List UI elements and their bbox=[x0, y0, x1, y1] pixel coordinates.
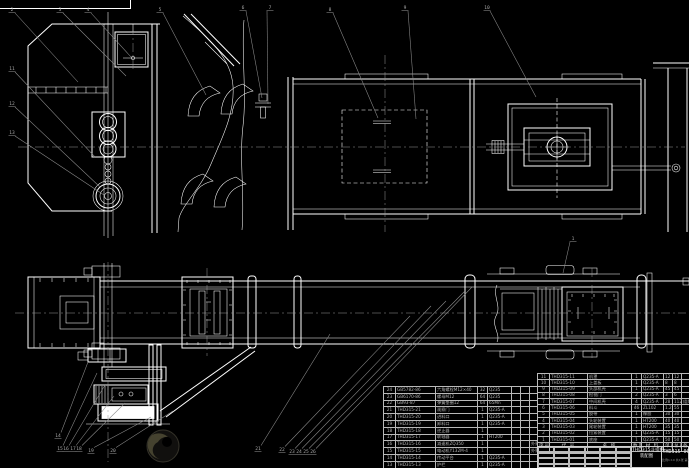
bom-row: 23GB6170-86螺母M1264Q235 bbox=[384, 393, 538, 400]
bom-cell: 16 bbox=[384, 441, 396, 448]
bom-cell bbox=[512, 400, 521, 407]
title-block: THD315斗提机 装配图 THD315-00 比例1:10 共1张 第1张 bbox=[537, 446, 689, 468]
balloon-20: 20 bbox=[110, 448, 116, 454]
bom-cell: THD315-21 bbox=[396, 407, 436, 414]
border-fragment bbox=[0, 0, 131, 9]
bom-cell: 1 bbox=[478, 434, 488, 441]
elevation-view bbox=[18, 12, 689, 238]
balloon-23: 23 bbox=[289, 449, 295, 455]
bom-cell bbox=[512, 461, 521, 468]
right-end-wall bbox=[653, 63, 689, 232]
drawing-title-cell: THD315斗提机 装配图 bbox=[631, 447, 662, 468]
casing bbox=[288, 74, 645, 230]
head-pulley-assembly bbox=[92, 112, 125, 211]
bom-cell: 观察门 bbox=[436, 407, 478, 414]
balloon-26: 26 bbox=[310, 449, 316, 455]
balloon-17: 17 bbox=[70, 446, 76, 452]
cad-drawing-canvas: 2345678910111213114151617181920212223242… bbox=[0, 0, 689, 468]
bom-cell bbox=[521, 461, 530, 468]
balloon-19: 19 bbox=[88, 448, 94, 454]
balloon-15: 15 bbox=[57, 446, 63, 452]
break-line bbox=[495, 285, 498, 342]
bom-cell: 20 bbox=[384, 414, 396, 421]
bom-cell: 1 bbox=[478, 441, 488, 448]
bom-cell: 64 bbox=[478, 400, 488, 407]
balloon-18: 18 bbox=[76, 446, 82, 452]
bom-cell: 17 bbox=[384, 434, 396, 441]
bom-cell: Q235 bbox=[488, 387, 512, 394]
bom-cell bbox=[488, 441, 512, 448]
balloon-14: 14 bbox=[55, 433, 61, 439]
balloon-2: 2 bbox=[11, 7, 14, 13]
bom-row: 19THD315-19卸料口1Q235-A bbox=[384, 420, 538, 427]
plan-boot-section bbox=[487, 266, 689, 360]
balloon-5: 5 bbox=[159, 7, 162, 13]
bom-cell: 14 bbox=[384, 454, 396, 461]
bom-cell: THD315-17 bbox=[396, 434, 436, 441]
bom-cell: 65Mn bbox=[488, 400, 512, 407]
bom-cell: 22 bbox=[384, 400, 396, 407]
bom-cell: 1 bbox=[478, 420, 488, 427]
bom-cell: 1 bbox=[478, 454, 488, 461]
feed-chute bbox=[184, 14, 240, 66]
bom-row: 14THD315-14传动平台1Q235-A bbox=[384, 454, 538, 461]
bom-cell: 15 bbox=[384, 448, 396, 455]
leader-line bbox=[61, 362, 88, 433]
bom-cell: 弹簧垫圈12 bbox=[436, 400, 478, 407]
watermark-logo bbox=[147, 430, 179, 462]
bom-row: 15THD315-15电动机Y132M-41外购 bbox=[384, 448, 538, 455]
balloon-1: 1 bbox=[572, 236, 575, 242]
bom-cell: 电动机Y132M-4 bbox=[436, 448, 478, 455]
bom-cell bbox=[512, 420, 521, 427]
bom-cell bbox=[512, 448, 521, 455]
balloon-12: 12 bbox=[9, 101, 15, 107]
balloon-21: 21 bbox=[255, 446, 261, 452]
bom-cell bbox=[521, 427, 530, 434]
bom-cell bbox=[521, 414, 530, 421]
sheet-info: 比例1:10 共1张 第1张 bbox=[662, 458, 689, 462]
bom-cell: 1 bbox=[478, 407, 488, 414]
bom-cell bbox=[488, 448, 512, 455]
bom-cell bbox=[512, 441, 521, 448]
leader-line bbox=[563, 242, 570, 273]
leader-line bbox=[408, 11, 416, 119]
bom-cell: GB5782-86 bbox=[396, 387, 436, 394]
bom-cell: 护栏 bbox=[436, 461, 478, 468]
balloon-25: 25 bbox=[303, 449, 309, 455]
drawing-subtitle: 装配图 bbox=[632, 454, 661, 460]
bom-cell: 1 bbox=[478, 461, 488, 468]
balloon-3: 3 bbox=[59, 7, 62, 13]
bom-cell bbox=[512, 454, 521, 461]
bom-cell: 传动平台 bbox=[436, 454, 478, 461]
bom-cell: Q235-A bbox=[488, 420, 512, 427]
head-section bbox=[28, 24, 160, 236]
plan-head-section bbox=[28, 263, 120, 362]
boot-section bbox=[486, 98, 680, 198]
bom-cell bbox=[521, 420, 530, 427]
bom-cell: 19 bbox=[384, 420, 396, 427]
leader-line bbox=[163, 13, 206, 95]
bom-cell: Q235-A bbox=[488, 407, 512, 414]
bom-cell: 1 bbox=[478, 427, 488, 434]
bom-row: 21THD315-21观察门1Q235-A bbox=[384, 407, 538, 414]
bom-cell: THD315-18 bbox=[396, 427, 436, 434]
bom-cell: HT200 bbox=[488, 434, 512, 441]
bom-cell bbox=[512, 393, 521, 400]
bom-cell: Q235-A bbox=[488, 461, 512, 468]
bom-cell: THD315-14 bbox=[396, 454, 436, 461]
plan-casing bbox=[100, 281, 689, 344]
buckets bbox=[181, 84, 253, 207]
bom-row: 24GB5782-86六角螺栓M12×4032Q235 bbox=[384, 387, 538, 394]
bom-cell bbox=[521, 434, 530, 441]
flange-rings bbox=[248, 275, 646, 348]
bom-cell bbox=[512, 387, 521, 394]
bom-cell: GB6170-86 bbox=[396, 393, 436, 400]
leader-line bbox=[94, 417, 151, 448]
bom-row: 22GB93-87弹簧垫圈126465Mn bbox=[384, 400, 538, 407]
bom-cell: 逆止器 bbox=[436, 427, 478, 434]
bom-cell: THD315-15 bbox=[396, 448, 436, 455]
bom-cell bbox=[521, 407, 530, 414]
balloon-10: 10 bbox=[484, 5, 490, 11]
bom-table-left: 24GB5782-86六角螺栓M12×4032Q23523GB6170-86螺母… bbox=[383, 386, 538, 468]
leader-line bbox=[15, 13, 78, 82]
bom-cell: THD315-19 bbox=[396, 420, 436, 427]
leader-line bbox=[267, 11, 268, 104]
bom-cell: THD315-16 bbox=[396, 441, 436, 448]
motor bbox=[98, 404, 158, 421]
bom-row: 20THD315-20进料口1Q235-A bbox=[384, 414, 538, 421]
bom-cell: 32 bbox=[478, 387, 488, 394]
bom-cell: 18 bbox=[384, 427, 396, 434]
inspection-door bbox=[115, 24, 148, 70]
bom-cell bbox=[521, 387, 530, 394]
leader-line bbox=[333, 13, 378, 118]
bom-cell: Q235-A bbox=[488, 454, 512, 461]
bom-cell bbox=[512, 427, 521, 434]
gearbox bbox=[102, 367, 166, 381]
bom-cell: 卸料口 bbox=[436, 420, 478, 427]
bom-cell bbox=[521, 400, 530, 407]
balloon-6: 6 bbox=[242, 5, 245, 11]
bom-cell bbox=[512, 407, 521, 414]
braces bbox=[160, 347, 255, 417]
leader-line bbox=[261, 334, 330, 446]
coupling bbox=[78, 343, 126, 367]
reducer bbox=[94, 385, 148, 404]
bom-cell: GB93-87 bbox=[396, 400, 436, 407]
bom-cell: 联轴器 bbox=[436, 434, 478, 441]
leader-line bbox=[91, 13, 131, 57]
bom-cell: Q235 bbox=[488, 393, 512, 400]
drawing-number-cell: THD315-00 比例1:10 共1张 第1张 bbox=[662, 447, 689, 468]
bom-cell bbox=[521, 454, 530, 461]
bom-cell: Q235-A bbox=[488, 414, 512, 421]
bom-cell: THD315-13 bbox=[396, 461, 436, 468]
bom-cell: 13 bbox=[384, 461, 396, 468]
bom-cell bbox=[521, 393, 530, 400]
bom-cell: 六角螺栓M12×40 bbox=[436, 387, 478, 394]
bom-cell: THD315-20 bbox=[396, 414, 436, 421]
bom-cell: 进料口 bbox=[436, 414, 478, 421]
bom-cell: 21 bbox=[384, 407, 396, 414]
bom-cell: 减速机ZQ350 bbox=[436, 441, 478, 448]
bom-cell: 1 bbox=[478, 448, 488, 455]
break-line bbox=[242, 20, 245, 230]
balloon-13: 13 bbox=[9, 130, 15, 136]
bom-row: 18THD315-18逆止器1 bbox=[384, 427, 538, 434]
balloon-24: 24 bbox=[296, 449, 302, 455]
revision-grid bbox=[538, 447, 631, 468]
plan-access-panel bbox=[182, 277, 233, 348]
balloon-16: 16 bbox=[63, 446, 69, 452]
bom-table-right: 11THD315-11机罩1Q235-A121210THD315-10上盖板1Q… bbox=[537, 373, 689, 452]
balloon-8: 8 bbox=[329, 7, 332, 13]
bom-cell: 螺母M12 bbox=[436, 393, 478, 400]
leader-line bbox=[63, 13, 126, 76]
access-panel-dashed bbox=[342, 110, 427, 183]
balloon-7: 7 bbox=[269, 5, 272, 11]
bom-row: 13THD315-13护栏1Q235-A bbox=[384, 461, 538, 468]
bom-cell: 24 bbox=[384, 387, 396, 394]
bom-row: 17THD315-17联轴器1HT200 bbox=[384, 434, 538, 441]
bom-cell bbox=[488, 427, 512, 434]
bom-row: 16THD315-16减速机ZQ3501外购 bbox=[384, 441, 538, 448]
centerlines-elevation bbox=[18, 12, 685, 238]
bom-cell bbox=[521, 448, 530, 455]
drawing-number: THD315-00 bbox=[662, 447, 689, 458]
bom-cell bbox=[512, 414, 521, 421]
leader-line bbox=[63, 373, 97, 446]
takeup-screw bbox=[486, 141, 680, 173]
balloon-9: 9 bbox=[404, 5, 407, 11]
bucket-bolt-detail bbox=[255, 94, 271, 118]
bom-cell: 23 bbox=[384, 393, 396, 400]
bom-cell bbox=[521, 441, 530, 448]
balloon-4: 4 bbox=[87, 7, 90, 13]
bom-cell: 64 bbox=[478, 393, 488, 400]
bom-cell: 1 bbox=[478, 414, 488, 421]
bom-cell bbox=[512, 434, 521, 441]
balloon-11: 11 bbox=[9, 66, 15, 72]
balloon-22: 22 bbox=[279, 447, 285, 453]
leader-line bbox=[246, 11, 262, 98]
